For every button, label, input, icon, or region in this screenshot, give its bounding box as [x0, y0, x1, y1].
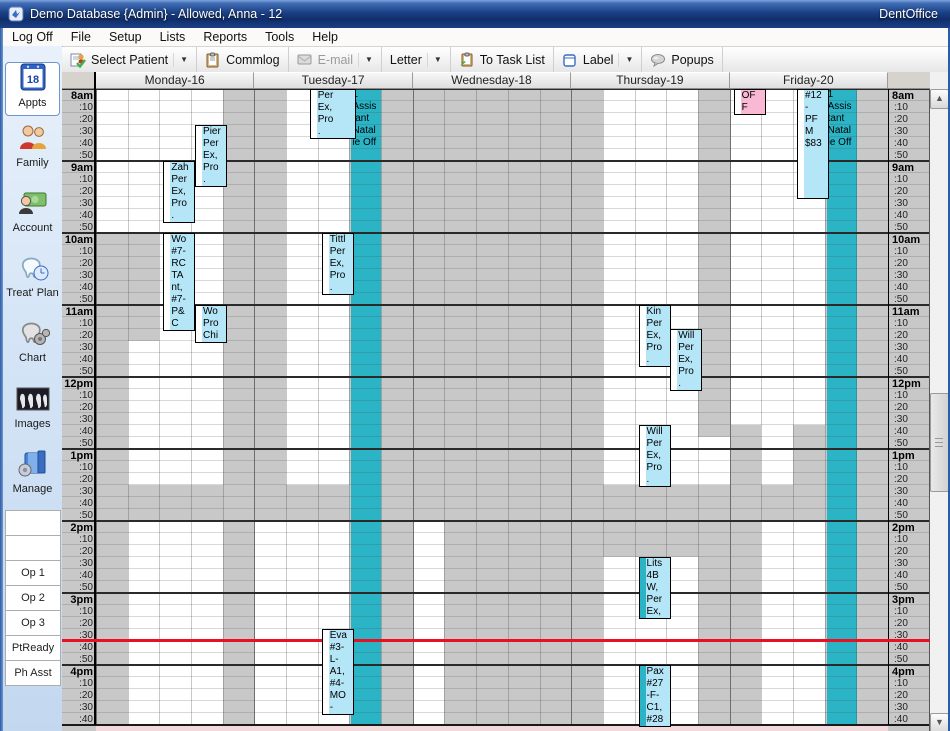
time-hour-label: 11am [62, 306, 93, 318]
time-minute-label: :30 [894, 126, 928, 138]
time-minute-label: :30 [62, 270, 93, 282]
time-minute-label: :30 [62, 342, 93, 354]
appointment-text-line: Ex, [647, 330, 670, 342]
toolbar-button-label: Commlog [226, 53, 280, 67]
appointment[interactable]: PerEx,Pro. [310, 89, 356, 139]
appointment-text-line: #7- [171, 294, 194, 306]
blockout-text-line: 1 [828, 89, 858, 101]
operatory-separator [761, 89, 762, 725]
treatplan-icon [16, 274, 50, 286]
thumb-grip [935, 438, 943, 439]
time-minute-label: :20 [894, 114, 928, 126]
blockout-text-line: tant [352, 113, 382, 125]
hour-line [62, 376, 930, 378]
operatory-separator [508, 89, 509, 725]
time-hour-label: 11am [892, 306, 928, 318]
to-task-list-button[interactable]: To Task List [451, 47, 554, 72]
open-time-block[interactable] [698, 437, 730, 485]
sidebar-item-account[interactable]: Account [5, 188, 60, 240]
time-minute-label: :20 [62, 474, 93, 486]
time-minute-label: :40 [62, 354, 93, 366]
time-minute-label: :20 [894, 402, 928, 414]
hour-line [62, 520, 930, 522]
time-minute-label: :20 [62, 186, 93, 198]
operatory-separator [286, 89, 287, 725]
appointment-text-line: -F- [647, 690, 670, 702]
operatory-row-op1[interactable]: Op 1 [5, 560, 61, 586]
toolbar-button-label: Label [583, 53, 614, 67]
appointment-text-line: L- [330, 654, 353, 666]
appointment-text-line: . [203, 174, 226, 186]
appointment-text-line: A1, [330, 666, 353, 678]
operatory-row-op2[interactable]: Op 2 [5, 585, 61, 611]
time-minute-label: :20 [62, 546, 93, 558]
time-minute-label: :10 [62, 318, 93, 330]
time-minute-label: :10 [62, 534, 93, 546]
blockout-stripe[interactable] [351, 89, 381, 725]
appointment-text-line: P& [171, 306, 194, 318]
toolbar-button-label: E-mail [318, 53, 353, 67]
appointment-text-line: Ex, [171, 186, 194, 198]
appointment-text-line: C1, [647, 702, 670, 714]
appointment-text-line: Pro [203, 162, 226, 174]
time-minute-label: :20 [62, 258, 93, 270]
time-minute-label: :20 [894, 258, 928, 270]
e-mail-button[interactable]: E-mail▼ [289, 47, 382, 72]
appointment-text-line: Wo [171, 234, 194, 246]
time-hour-label: 8am [62, 90, 93, 102]
appointment-text-line: Chi [203, 330, 226, 342]
title-bar: Demo Database {Admin} - Allowed, Anna - … [0, 0, 950, 28]
sidebar-item-family[interactable]: Family [5, 123, 60, 175]
images-icon [16, 405, 50, 417]
window-title: Demo Database {Admin} - Allowed, Anna - … [30, 7, 282, 21]
scroll-down-button[interactable]: ▼ [930, 713, 948, 731]
appointment[interactable]: ZahPerEx,Pro. [163, 161, 195, 223]
sidebar-item-label: Appts [6, 97, 59, 109]
appointment-text-line: 4B [647, 570, 670, 582]
day-header-friday: Friday-20 [730, 72, 888, 89]
time-minute-label: :40 [894, 642, 928, 654]
appointment-text-line: Per [203, 138, 226, 150]
time-minute-label: :40 [894, 498, 928, 510]
timecol-border [888, 72, 889, 725]
time-minute-label: :10 [894, 318, 928, 330]
time-minute-label: :10 [894, 534, 928, 546]
appointment-text-line: Pier [203, 126, 226, 138]
time-minute-label: :30 [894, 414, 928, 426]
appointment[interactable]: WillPerEx,Pro. [639, 425, 671, 487]
time-minute-label: :10 [894, 174, 928, 186]
sidebar-item-label: Images [5, 418, 60, 430]
day-header-tuesday: Tuesday-17 [254, 72, 412, 89]
appointment-text-line: Pro [678, 366, 701, 378]
appointment-text-line: $83 [805, 138, 828, 150]
appointment-text-line: Will [678, 330, 701, 342]
time-minute-label: :40 [894, 210, 928, 222]
appointment-text: KinPerEx,Pro. [646, 306, 670, 366]
time-hour-label: 8am [892, 90, 928, 102]
svg-text:18: 18 [26, 74, 38, 86]
sidebar-item-label: Manage [5, 483, 60, 495]
time-minute-label: :30 [62, 486, 93, 498]
sidebar-item-manage[interactable]: Manage [5, 449, 60, 501]
header-corner [888, 72, 930, 89]
operatory-row-phasst[interactable]: Ph Asst [5, 660, 61, 686]
day-separator [730, 72, 731, 725]
time-minute-label: :20 [894, 186, 928, 198]
time-minute-label: :20 [62, 402, 93, 414]
appointment-text-line: PF [805, 114, 828, 126]
time-minute-label: :40 [894, 570, 928, 582]
app-window: Demo Database {Admin} - Allowed, Anna - … [0, 0, 950, 731]
time-minute-label: :30 [62, 414, 93, 426]
appointment-text: OFF [741, 90, 765, 114]
appointment-text-line: Pro [203, 318, 226, 330]
appointment-text: WoProChi [202, 306, 226, 342]
select-patient-button[interactable]: Select Patient▼ [62, 47, 197, 72]
appointment-text-line: Per [318, 90, 355, 102]
time-minute-label: :40 [62, 498, 93, 510]
appointment[interactable]: WillPerEx,Pro. [670, 329, 702, 391]
sidebar-item-label: Treat' Plan [5, 287, 60, 299]
time-minute-label: :10 [894, 462, 928, 474]
hour-line [62, 724, 930, 726]
appointment-text-line: . [330, 282, 353, 294]
appointment-text-line: nt, [171, 282, 194, 294]
appointment-text-line: Per [330, 246, 353, 258]
thumb-grip [935, 442, 943, 443]
appointment-text-line: #12 [805, 90, 828, 102]
appointment-text-line: - [330, 702, 353, 714]
time-hour-label: 3pm [62, 594, 93, 606]
appointment-text-line: M [805, 126, 828, 138]
time-minute-label: :30 [62, 702, 93, 714]
operatory-row[interactable] [5, 510, 61, 536]
appointment-text: PierPerEx,Pro. [202, 126, 226, 186]
appointment-text-line: Per [678, 342, 701, 354]
time-minute-label: :10 [62, 102, 93, 114]
commlog-icon [205, 52, 221, 68]
appointment-text: PerEx,Pro. [317, 90, 355, 138]
appts-icon: 18 [16, 84, 50, 96]
appointment-text-line: Eva [330, 630, 353, 642]
appointment-text: Pax#27-F-C1,#28 [646, 666, 670, 726]
select-patient-icon [70, 52, 86, 68]
appointment-text-line: Ex, [318, 102, 355, 114]
time-minute-label: :30 [894, 342, 928, 354]
appointment-text-line: C [171, 318, 194, 330]
time-hour-label: 12pm [62, 378, 93, 390]
time-hour-label: 1pm [892, 450, 928, 462]
appointment-text-line: OF [742, 90, 765, 102]
time-minute-label: :10 [62, 462, 93, 474]
time-minute-label: :20 [62, 114, 93, 126]
appointment-text-line: Kin [647, 306, 670, 318]
time-minute-label: :30 [894, 270, 928, 282]
day-separator [413, 72, 414, 725]
open-time-block[interactable] [128, 521, 223, 725]
scroll-up-button[interactable]: ▲ [930, 89, 948, 109]
operatory-separator [476, 89, 477, 725]
time-hour-label: 2pm [892, 522, 928, 534]
current-time-line [62, 639, 930, 642]
sidebar-item-label: Account [5, 222, 60, 234]
blockout-text-line: 1 [352, 89, 382, 101]
bottom-overflow-strip [96, 726, 888, 731]
day-separator [254, 72, 255, 725]
blockout-text-line: tant [828, 113, 858, 125]
operatory-separator [318, 89, 319, 725]
appointment-text-line: - [805, 102, 828, 114]
header-corner [62, 72, 94, 89]
menu-item-lists[interactable]: Lists [151, 28, 195, 46]
sidebar-item-label: Chart [5, 352, 60, 364]
day-header-monday: Monday-16 [96, 72, 254, 89]
appointment-text-line: Pro [318, 114, 355, 126]
operatory-row-ptready[interactable]: PtReady [5, 635, 61, 661]
time-hour-label: 9am [62, 162, 93, 174]
appointment[interactable]: Pax#27-F-C1,#28 [639, 665, 671, 727]
time-minute-label: :40 [62, 138, 93, 150]
time-minute-label: :20 [62, 618, 93, 630]
time-hour-label: 10am [892, 234, 928, 246]
operatory-separator [698, 89, 699, 725]
time-hour-label: 1pm [62, 450, 93, 462]
tasklist-icon [459, 52, 475, 68]
time-hour-label: 2pm [62, 522, 93, 534]
appointment-text-line: . [678, 378, 701, 390]
family-icon [16, 144, 50, 156]
time-minute-label: :30 [894, 702, 928, 714]
appointment[interactable]: #12-PFM$83 [797, 89, 829, 199]
time-minute-label: :30 [62, 198, 93, 210]
appointment-text-line: Pro [647, 342, 670, 354]
blockout-label: 1AssistantNatalie Off [351, 89, 382, 149]
appointment-text-line: . [171, 210, 194, 222]
appointment[interactable]: WoProChi [195, 305, 227, 343]
time-hour-label: 4pm [62, 666, 93, 678]
time-minute-label: :10 [62, 174, 93, 186]
appointment[interactable]: TittlPerEx,Pro. [322, 233, 354, 295]
toolbar-button-label: Letter [390, 53, 422, 67]
blockout-text-line: Assis [352, 101, 382, 113]
appointment-text-line: RC [171, 258, 194, 270]
time-minute-label: :10 [62, 606, 93, 618]
appointment-text-line: #27 [647, 678, 670, 690]
time-minute-label: :30 [894, 558, 928, 570]
blockout-text-line: ie Off [828, 137, 858, 149]
time-hour-label: 9am [892, 162, 928, 174]
label-button[interactable]: Label▼ [554, 47, 643, 72]
blockout-text-line: Assis [828, 101, 858, 113]
appointment[interactable]: OFF [734, 89, 766, 115]
menu-bar: Log OffFileSetupListsReportsToolsHelp [3, 28, 948, 47]
commlog-button[interactable]: Commlog [197, 47, 289, 72]
appointment-text: Wo#7-RCTAnt,#7-P&C [170, 234, 194, 330]
time-minute-label: :40 [62, 642, 93, 654]
appointment-text-line: Per [647, 438, 670, 450]
time-minute-label: :10 [894, 102, 928, 114]
hour-line [62, 664, 930, 666]
appointment-text-line: Ex, [647, 450, 670, 462]
appointment-text-line: Pro [647, 462, 670, 474]
appointment-text-line: TA [171, 270, 194, 282]
dropdown-arrow-icon[interactable]: ▼ [358, 53, 373, 67]
time-minute-label: :40 [894, 138, 928, 150]
time-minute-label: :20 [894, 330, 928, 342]
menu-item-tools[interactable]: Tools [256, 28, 303, 46]
time-minute-label: :20 [894, 546, 928, 558]
time-minute-label: :10 [894, 678, 928, 690]
appointment-text: TittlPerEx,Pro. [329, 234, 353, 294]
schedule-grid[interactable]: 1AssistantNatalie Off1AssistantNatalie O… [62, 72, 948, 731]
appointment-text-line: #3- [330, 642, 353, 654]
letter-button[interactable]: Letter▼ [382, 47, 451, 72]
appointment-text-line: #7- [171, 246, 194, 258]
time-minute-label: :30 [894, 486, 928, 498]
time-hour-label: 10am [62, 234, 93, 246]
dropdown-arrow-icon[interactable]: ▼ [618, 53, 633, 67]
appointment-text-line: Zah [171, 162, 194, 174]
operatory-separator [603, 89, 604, 725]
dropdown-arrow-icon[interactable]: ▼ [427, 53, 442, 67]
sidebar-item-appts[interactable]: 18Appts [5, 62, 60, 116]
appointment-text: WillPerEx,Pro. [677, 330, 701, 390]
day-separator [571, 72, 572, 725]
sidebar-item-chart[interactable]: Chart [5, 318, 60, 370]
sidebar: 18ApptsFamilyAccountTreat' PlanChartImag… [3, 46, 63, 731]
appointment-text-line: F [742, 102, 765, 114]
menu-item-reports[interactable]: Reports [194, 28, 256, 46]
appointment-text-line: #4- [330, 678, 353, 690]
hour-line [62, 592, 930, 594]
operatory-row[interactable] [5, 535, 61, 561]
scrollbar-thumb[interactable] [930, 393, 948, 492]
time-minute-label: :40 [894, 426, 928, 438]
appointment-text-line: Pro [330, 270, 353, 282]
open-time-block[interactable] [128, 341, 223, 485]
operatory-row-op3[interactable]: Op 3 [5, 610, 61, 636]
thumb-grip [935, 446, 943, 447]
time-minute-label: :40 [894, 282, 928, 294]
appointment-text-line: Per [647, 594, 670, 606]
appointment-text-line: Pax [647, 666, 670, 678]
menu-item-help[interactable]: Help [303, 28, 347, 46]
toolbar-button-label: Popups [671, 53, 713, 67]
appointment-text-line: Will [647, 426, 670, 438]
time-minute-label: :40 [62, 426, 93, 438]
day-header-wednesday: Wednesday-18 [413, 72, 571, 89]
open-time-block[interactable] [761, 425, 793, 485]
menu-item-setup[interactable]: Setup [100, 28, 151, 46]
appointment[interactable]: Lits4BW,PerEx, [639, 557, 671, 619]
chart-icon [16, 339, 50, 351]
appointment-text-line: MO [330, 690, 353, 702]
toolbar-button-label: To Task List [480, 53, 545, 67]
time-minute-label: :40 [62, 282, 93, 294]
time-hour-label: 12pm [892, 378, 928, 390]
operatory-separator [666, 89, 667, 725]
appointment-text-line: Lits [647, 558, 670, 570]
operatory-separator [856, 89, 857, 725]
blockout-text-line: Natal [828, 125, 858, 137]
time-minute-label: :10 [62, 678, 93, 690]
time-minute-label: :30 [62, 126, 93, 138]
appointment-text: ZahPerEx,Pro. [170, 162, 194, 222]
time-minute-label: :10 [62, 246, 93, 258]
appointment-text: Eva#3-L-A1,#4-MO- [329, 630, 353, 714]
time-minute-label: :10 [62, 390, 93, 402]
time-minute-label: :20 [62, 690, 93, 702]
blockout-text-line: ie Off [352, 137, 382, 149]
time-minute-label: :20 [62, 330, 93, 342]
sidebar-item-images[interactable]: Images [5, 384, 60, 436]
operatory-separator [793, 89, 794, 725]
account-icon [16, 209, 50, 221]
operatory-separator [635, 89, 636, 725]
appointment-text: #12-PFM$83 [804, 90, 828, 198]
operatory-separator [381, 89, 382, 725]
appointment-text-line: Ex, [678, 354, 701, 366]
time-minute-label: :40 [62, 210, 93, 222]
timecol-border [94, 72, 96, 725]
toolbar: Select Patient▼CommlogE-mail▼Letter▼To T… [62, 47, 948, 73]
app-icon [8, 6, 24, 22]
day-header-thursday: Thursday-19 [571, 72, 729, 89]
time-minute-label: :30 [62, 558, 93, 570]
appointment[interactable]: Wo#7-RCTAnt,#7-P&C [163, 233, 195, 331]
appointment-text-line: Ex, [203, 150, 226, 162]
operatory-separator [540, 89, 541, 725]
appointment-text-line: Wo [203, 306, 226, 318]
open-time-block[interactable] [413, 521, 445, 725]
time-minute-label: :40 [894, 354, 928, 366]
label-icon [562, 52, 578, 68]
menu-item-log-off[interactable]: Log Off [3, 28, 62, 46]
appointment-text-line: . [647, 354, 670, 366]
time-hour-label: 3pm [892, 594, 928, 606]
sidebar-item-treatplan[interactable]: Treat' Plan [5, 253, 60, 305]
time-minute-label: :10 [894, 390, 928, 402]
time-minute-label: :20 [894, 618, 928, 630]
appointment[interactable]: KinPerEx,Pro. [639, 305, 671, 367]
time-minute-label: :40 [62, 570, 93, 582]
blockout-label: 1AssistantNatalie Off [827, 89, 858, 149]
dropdown-arrow-icon[interactable]: ▼ [173, 53, 188, 67]
appointment[interactable]: Eva#3-L-A1,#4-MO- [322, 629, 354, 715]
time-minute-label: :20 [894, 690, 928, 702]
appointment-text-line: Ex, [330, 258, 353, 270]
hour-line [62, 448, 930, 450]
blockout-stripe[interactable] [827, 89, 857, 725]
sidebar-item-label: Family [5, 157, 60, 169]
appointment-text-line: Pro [171, 198, 194, 210]
popups-button[interactable]: Popups [642, 47, 722, 72]
time-minute-label: :20 [894, 474, 928, 486]
manage-icon [16, 470, 50, 482]
appointment-text-line: . [318, 126, 355, 138]
day-separator [96, 72, 97, 725]
appointment-text-line: Per [171, 174, 194, 186]
menu-item-file[interactable]: File [62, 28, 100, 46]
operatory-separator [159, 89, 160, 725]
appointment-text-line: Tittl [330, 234, 353, 246]
time-hour-label: 4pm [892, 666, 928, 678]
appointment-text: WillPerEx,Pro. [646, 426, 670, 486]
appointment-text-line: . [647, 474, 670, 486]
appointment[interactable]: PierPerEx,Pro. [195, 125, 227, 187]
